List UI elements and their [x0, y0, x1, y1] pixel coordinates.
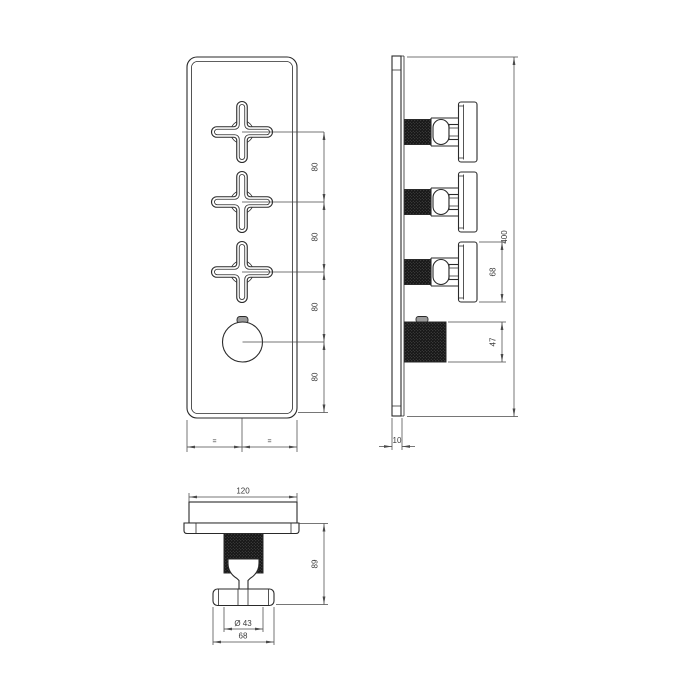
dim-handle-height: 68	[489, 267, 498, 276]
bottom-plate-edge	[184, 523, 299, 534]
side-plate-profile	[392, 56, 401, 416]
dim-knob-diameter: 47	[489, 337, 498, 346]
equal-mark-right: =	[267, 439, 271, 446]
equal-mark-left: =	[212, 439, 216, 446]
side-dim-knob: 47	[448, 322, 506, 362]
side-view: 68 47 400 10	[379, 56, 518, 450]
bottom-dim-depth: 89	[276, 524, 328, 605]
dim-handle-width: 68	[239, 632, 248, 641]
side-dim-thickness: 10	[379, 418, 415, 450]
dim-spacing-1: 80	[311, 162, 320, 171]
drawing-page: 80 80 80 80 = = 68	[0, 0, 700, 700]
dim-spacing-2: 80	[311, 232, 320, 241]
dim-knurl-diameter: Ø 43	[234, 619, 252, 628]
dim-handle-depth: 89	[311, 559, 320, 568]
bottom-plate-face	[189, 502, 297, 523]
dim-plate-width: 120	[236, 487, 250, 496]
bottom-handle-bar	[213, 589, 274, 606]
dim-overall-height: 400	[500, 230, 509, 244]
side-cross-handle-3	[405, 242, 478, 302]
front-equal-dim: = =	[187, 419, 297, 453]
dim-spacing-3: 80	[311, 302, 320, 311]
dim-spacing-4: 80	[311, 372, 320, 381]
bottom-dim-plate-width: 120	[189, 487, 297, 503]
front-view: 80 80 80 80 = =	[187, 57, 328, 452]
technical-drawing-canvas: 80 80 80 80 = = 68	[0, 0, 700, 700]
bottom-dim-knurl: Ø 43	[224, 607, 263, 632]
bottom-view: 120 Ø 43 68 89	[184, 487, 328, 646]
side-cross-handle-1	[405, 102, 478, 162]
side-dim-handle-height: 68	[479, 242, 506, 302]
bottom-handle-hub	[228, 559, 259, 589]
side-cross-handle-2	[405, 172, 478, 232]
dim-plate-thickness: 10	[393, 436, 402, 445]
side-knob-profile	[405, 322, 447, 362]
